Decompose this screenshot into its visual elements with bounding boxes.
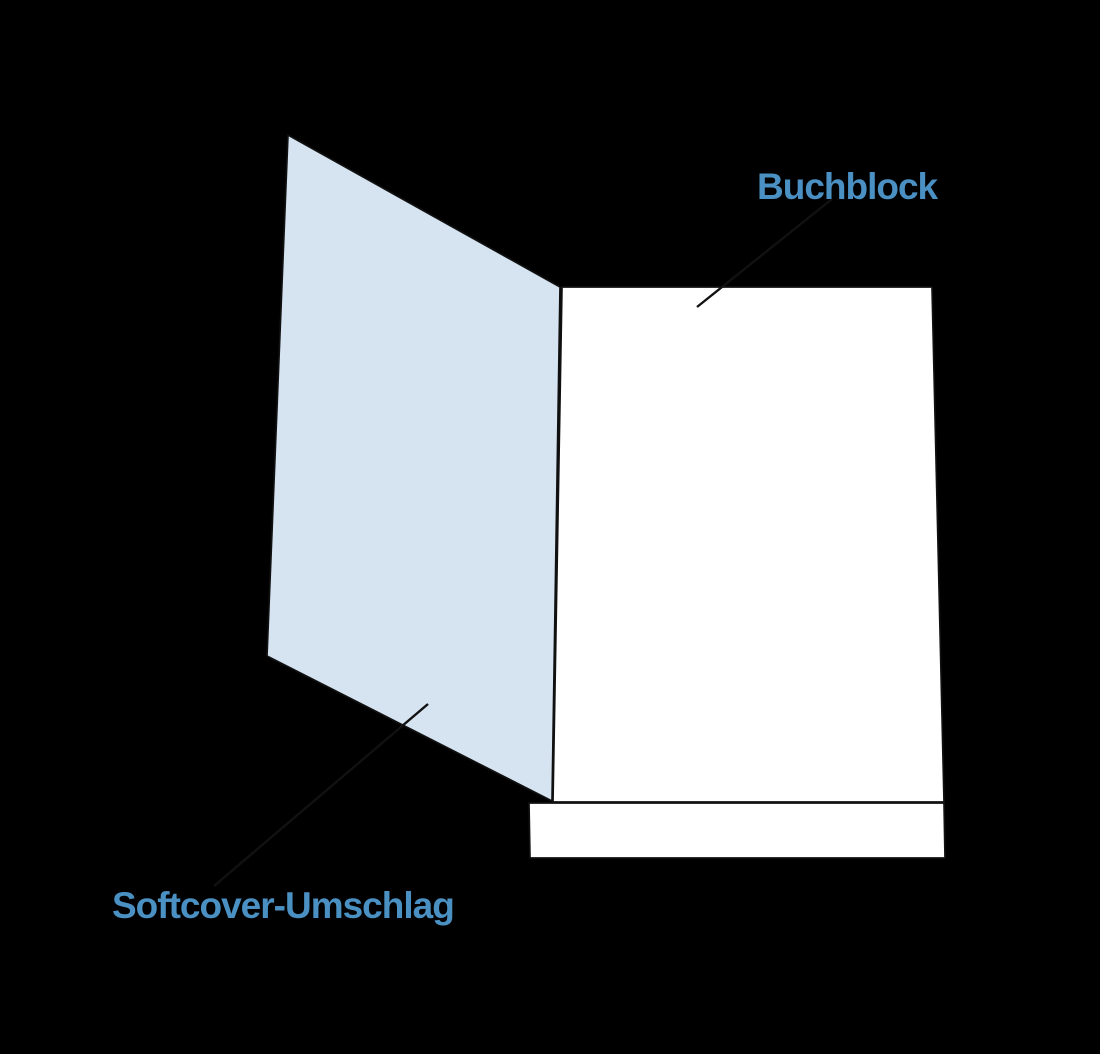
softcover-cover-shape xyxy=(267,135,560,801)
book-block-pages-edge-shape xyxy=(529,803,945,858)
diagram-canvas: { "canvas": { "width": 1100, "height": 1… xyxy=(0,0,1100,1054)
book-block-front-shape xyxy=(553,287,944,802)
leader-line-softcover xyxy=(214,704,428,886)
buchblock-label: Buchblock xyxy=(757,166,939,207)
softcover-umschlag-label: Softcover-Umschlag xyxy=(112,885,454,926)
book-binding-diagram: Buchblock Softcover-Umschlag xyxy=(0,0,1100,1054)
